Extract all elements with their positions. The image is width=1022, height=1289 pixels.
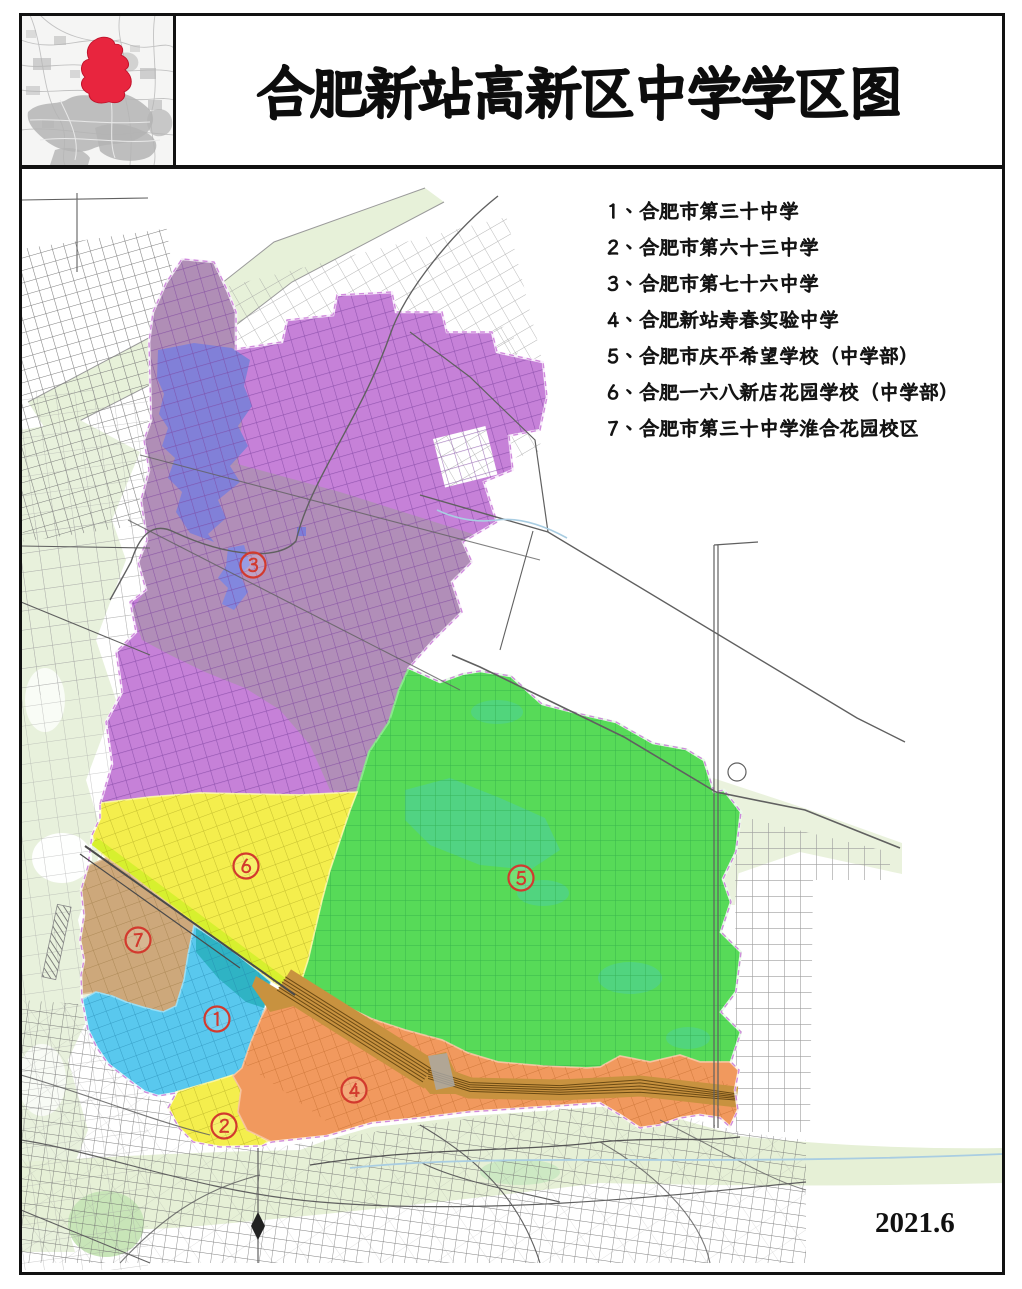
svg-text:2021.6: 2021.6: [875, 1207, 955, 1239]
